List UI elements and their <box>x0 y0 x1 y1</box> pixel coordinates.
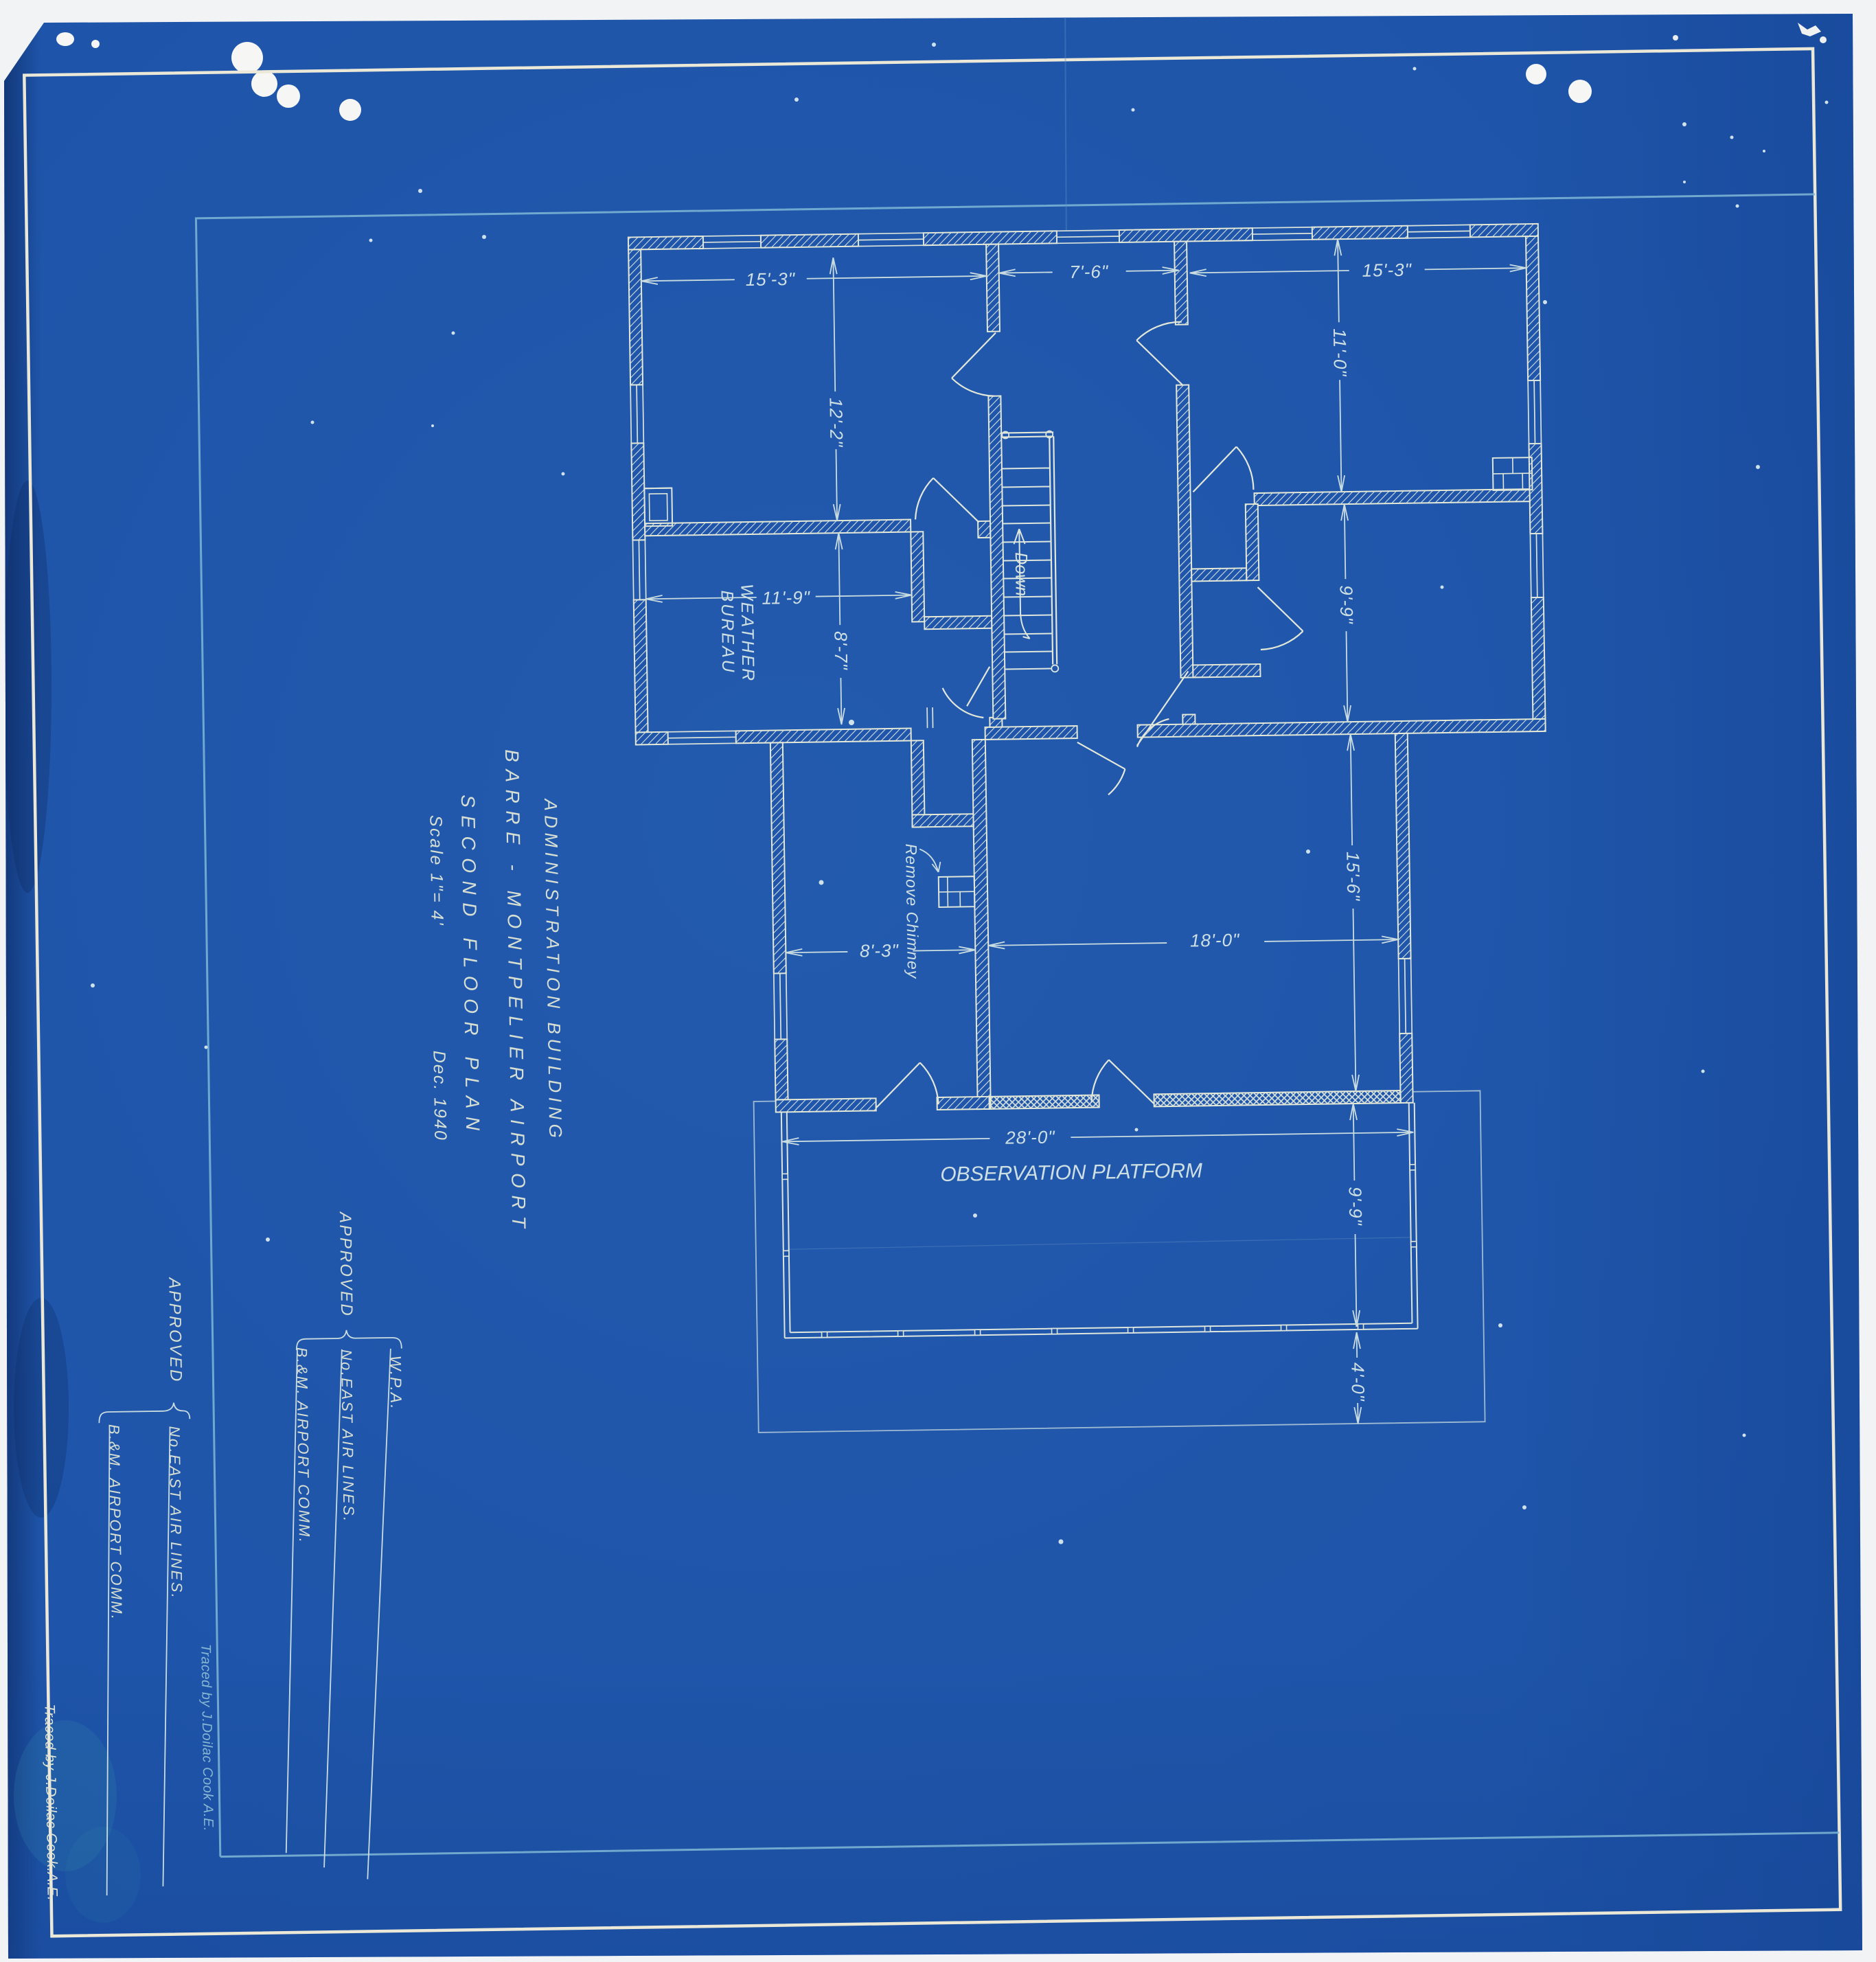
svg-text:15'-3": 15'-3" <box>1362 260 1412 281</box>
svg-text:8'-7": 8'-7" <box>830 631 851 671</box>
svg-text:BUREAU: BUREAU <box>718 590 738 674</box>
svg-text:18'-0": 18'-0" <box>1190 929 1240 950</box>
svg-text:Scale 1"= 4': Scale 1"= 4' <box>426 815 446 927</box>
svg-text:APPROVED: APPROVED <box>336 1211 356 1318</box>
svg-text:9'-9": 9'-9" <box>1336 585 1358 625</box>
svg-text:Traced by J.Doilac Cook A.E.: Traced by J.Doilac Cook A.E. <box>198 1644 216 1832</box>
svg-text:4'-0": 4'-0" <box>1347 1362 1369 1402</box>
svg-text:11'-9": 11'-9" <box>762 587 811 608</box>
svg-text:9'-9": 9'-9" <box>1345 1187 1366 1227</box>
svg-text:7'-6": 7'-6" <box>1069 261 1109 282</box>
svg-text:8'-3": 8'-3" <box>860 940 900 961</box>
svg-text:15'-3": 15'-3" <box>745 269 795 290</box>
svg-text:OBSERVATION PLATFORM: OBSERVATION PLATFORM <box>940 1159 1202 1186</box>
svg-text:APPROVED: APPROVED <box>165 1276 185 1383</box>
svg-text:Remove Chimney: Remove Chimney <box>902 843 922 979</box>
svg-text:11'-0": 11'-0" <box>1329 328 1351 378</box>
svg-text:WEATHER: WEATHER <box>737 584 757 683</box>
svg-text:Dec. 1940: Dec. 1940 <box>429 1051 450 1141</box>
svg-text:12'-2": 12'-2" <box>825 398 847 448</box>
svg-text:15'-6": 15'-6" <box>1342 852 1364 902</box>
svg-text:28'-0": 28'-0" <box>1005 1126 1055 1148</box>
svg-text:Down: Down <box>1011 552 1031 596</box>
svg-text:Traced by J.Doilac Cook.A.E.: Traced by J.Doilac Cook.A.E. <box>41 1704 60 1901</box>
